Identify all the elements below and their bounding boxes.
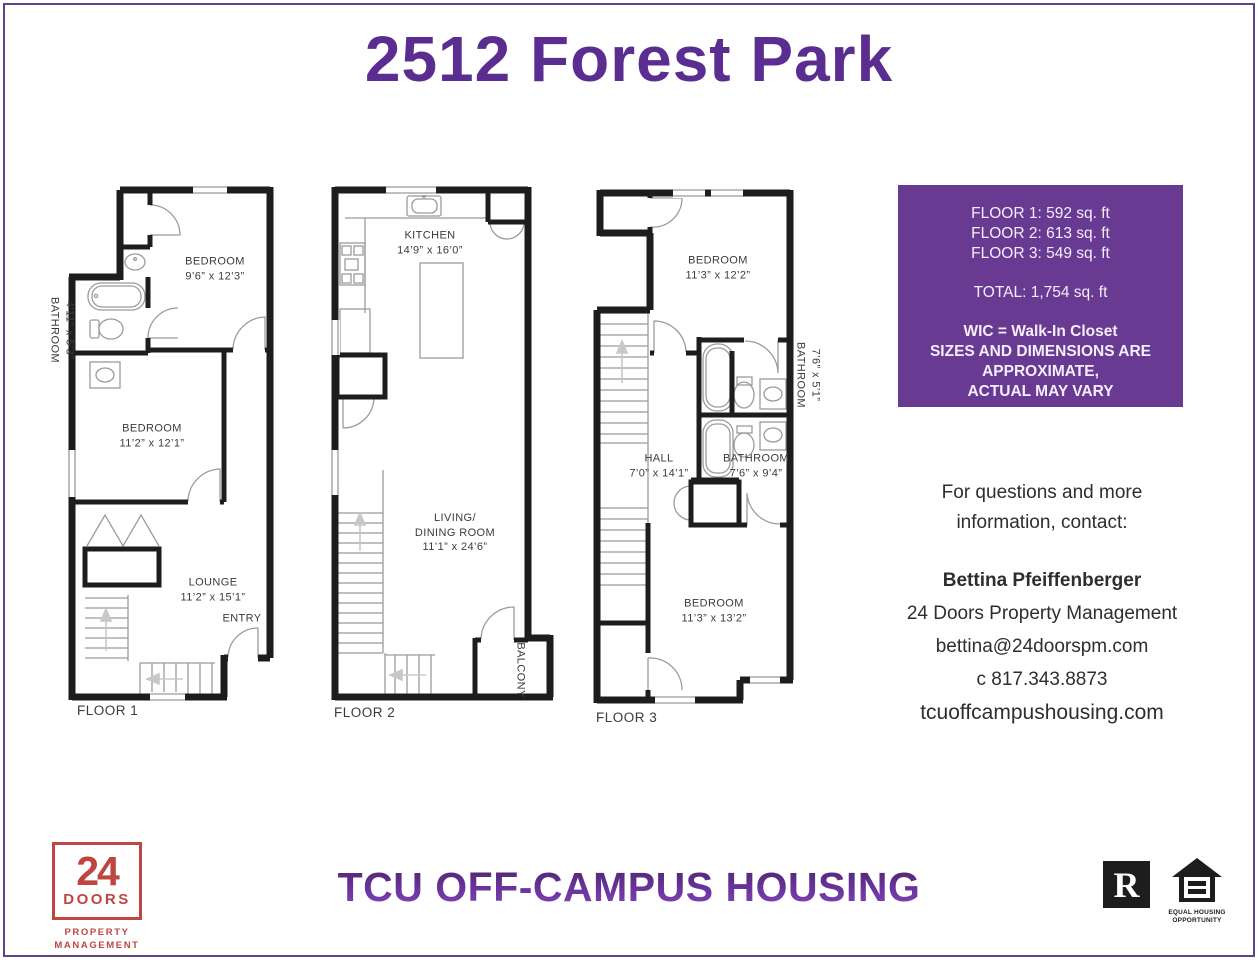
floor2-caption: FLOOR 2 (334, 705, 395, 720)
contact-name: Bettina Pfeiffenberger (872, 564, 1212, 597)
realtor-r-letter: R (1114, 864, 1140, 906)
room-label-bedroom: BEDROOM11’3” x 12’2” (686, 253, 751, 282)
floor1-caption: FLOOR 1 (77, 703, 138, 718)
room-label-bedroom: BEDROOM11’2” x 12’1” (120, 421, 185, 450)
contact-intro-line1: For questions and more (872, 478, 1212, 508)
room-label-bathroom: 7’6” x 5’1”BATHROOM (793, 342, 822, 408)
floor1-plan: BEDROOM9’6” x 12’3” 4’11” x 5’3”BATHROOM… (65, 183, 295, 728)
24-doors-logo-box: 24 DOORS (52, 842, 142, 920)
page-title: 2512 Forest Park (0, 22, 1258, 96)
contact-phone: c 817.343.8873 (872, 663, 1212, 696)
floor3-plan: BEDROOM11’3” x 12’2” 7’6” x 5’1”BATHROOM… (592, 183, 847, 728)
eho-text-line1: EQUAL HOUSING (1166, 909, 1228, 917)
room-label-living-dining: LIVING/DINING ROOM11’1” x 24’6” (415, 511, 495, 555)
room-label-entry: ENTRY (222, 612, 261, 627)
disclaimer-line1: SIZES AND DIMENSIONS ARE (898, 342, 1183, 362)
floor2-area: FLOOR 2: 613 sq. ft (898, 224, 1183, 244)
floor2-plan: KITCHEN14’9” x 16’0” LIVING/DINING ROOM1… (328, 183, 563, 728)
room-label-bathroom: 4’11” x 5’3”BATHROOM (47, 297, 76, 363)
realtor-logo: R (1103, 861, 1150, 908)
contact-email: bettina@24doorspm.com (872, 630, 1212, 663)
area-info-box: FLOOR 1: 592 sq. ft FLOOR 2: 613 sq. ft … (898, 185, 1183, 407)
room-label-bedroom: BEDROOM9’6” x 12’3” (185, 254, 245, 283)
contact-website: tcuoffcampushousing.com (872, 696, 1212, 730)
footer-brand: TCU OFF-CAMPUS HOUSING (0, 864, 1258, 911)
total-area: TOTAL: 1,754 sq. ft (898, 283, 1183, 303)
eho-text-line2: OPPORTUNITY (1166, 917, 1228, 925)
contact-block: For questions and more information, cont… (872, 478, 1212, 730)
floor3-caption: FLOOR 3 (596, 710, 657, 725)
flyer-page: 2512 Forest Park (0, 0, 1258, 960)
room-label-lounge: LOUNGE11’2” x 15’1” (181, 575, 246, 604)
contact-company: 24 Doors Property Management (872, 597, 1212, 630)
24-doors-logo: 24 DOORS PROPERTY MANAGEMENT (47, 842, 147, 952)
floor3-area: FLOOR 3: 549 sq. ft (898, 244, 1183, 264)
logo-number: 24 (76, 854, 118, 889)
contact-intro-line2: information, contact: (872, 508, 1212, 538)
logo-tagline-line2: MANAGEMENT (47, 939, 147, 952)
floor1-drawing (65, 183, 295, 728)
equal-housing-logo: EQUAL HOUSING OPPORTUNITY (1166, 857, 1228, 924)
room-label-kitchen: KITCHEN14’9” x 16’0” (397, 228, 463, 257)
disclaimer-line3: ACTUAL MAY VARY (898, 382, 1183, 402)
room-label-balcony: BALCONY (513, 642, 528, 697)
room-label-bathroom: BATHROOM7’6” x 9’4” (723, 451, 789, 480)
logo-tagline-line1: PROPERTY (47, 926, 147, 939)
room-label-hall: HALL7’0” x 14’1” (629, 451, 688, 480)
equal-housing-house-icon (1170, 857, 1224, 903)
logo-name: DOORS (63, 891, 131, 908)
wic-note: WIC = Walk-In Closet (898, 322, 1183, 342)
floor2-drawing (328, 183, 563, 728)
floor1-area: FLOOR 1: 592 sq. ft (898, 204, 1183, 224)
room-label-bedroom: BEDROOM11’3” x 13’2” (682, 596, 747, 625)
disclaimer-line2: APPROXIMATE, (898, 362, 1183, 382)
